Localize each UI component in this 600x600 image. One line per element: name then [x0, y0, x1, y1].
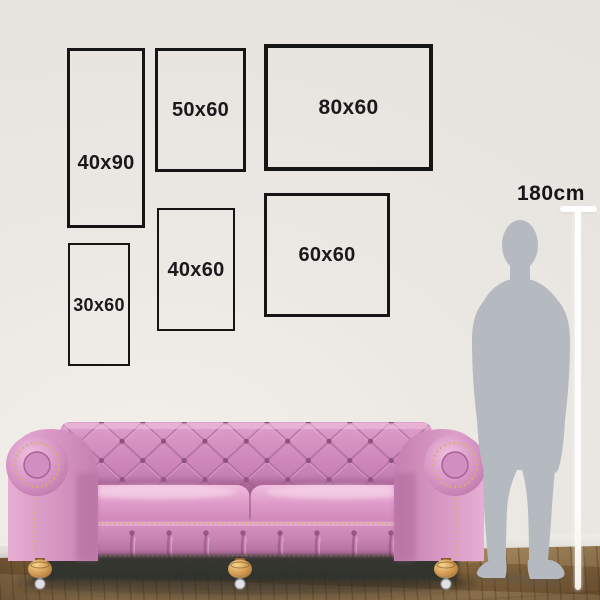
frame-80x60: 80x60	[264, 44, 433, 171]
height-marker-label: 180cm	[517, 183, 585, 204]
frame-60x60: 60x60	[264, 193, 390, 317]
sofa-left-arm	[6, 429, 98, 561]
frame-60x60-label: 60x60	[298, 245, 355, 265]
frame-80x60-label: 80x60	[319, 97, 379, 118]
frame-40x90-label: 40x90	[70, 153, 142, 173]
frame-50x60-label: 50x60	[172, 100, 229, 120]
frame-50x60: 50x60	[155, 48, 246, 172]
frame-40x60: 40x60	[157, 208, 235, 331]
height-marker-line	[575, 208, 581, 590]
frame-40x60-label: 40x60	[167, 260, 224, 280]
man-silhouette-icon	[458, 218, 582, 582]
sofa-icon	[0, 415, 492, 600]
frame-30x60: 30x60	[68, 243, 130, 366]
frame-40x90: 40x90	[67, 48, 145, 228]
frame-30x60-label: 30x60	[73, 296, 125, 314]
frame-size-guide-scene: 40x90 50x60 80x60 30x60 40x60 60x60	[0, 0, 600, 600]
